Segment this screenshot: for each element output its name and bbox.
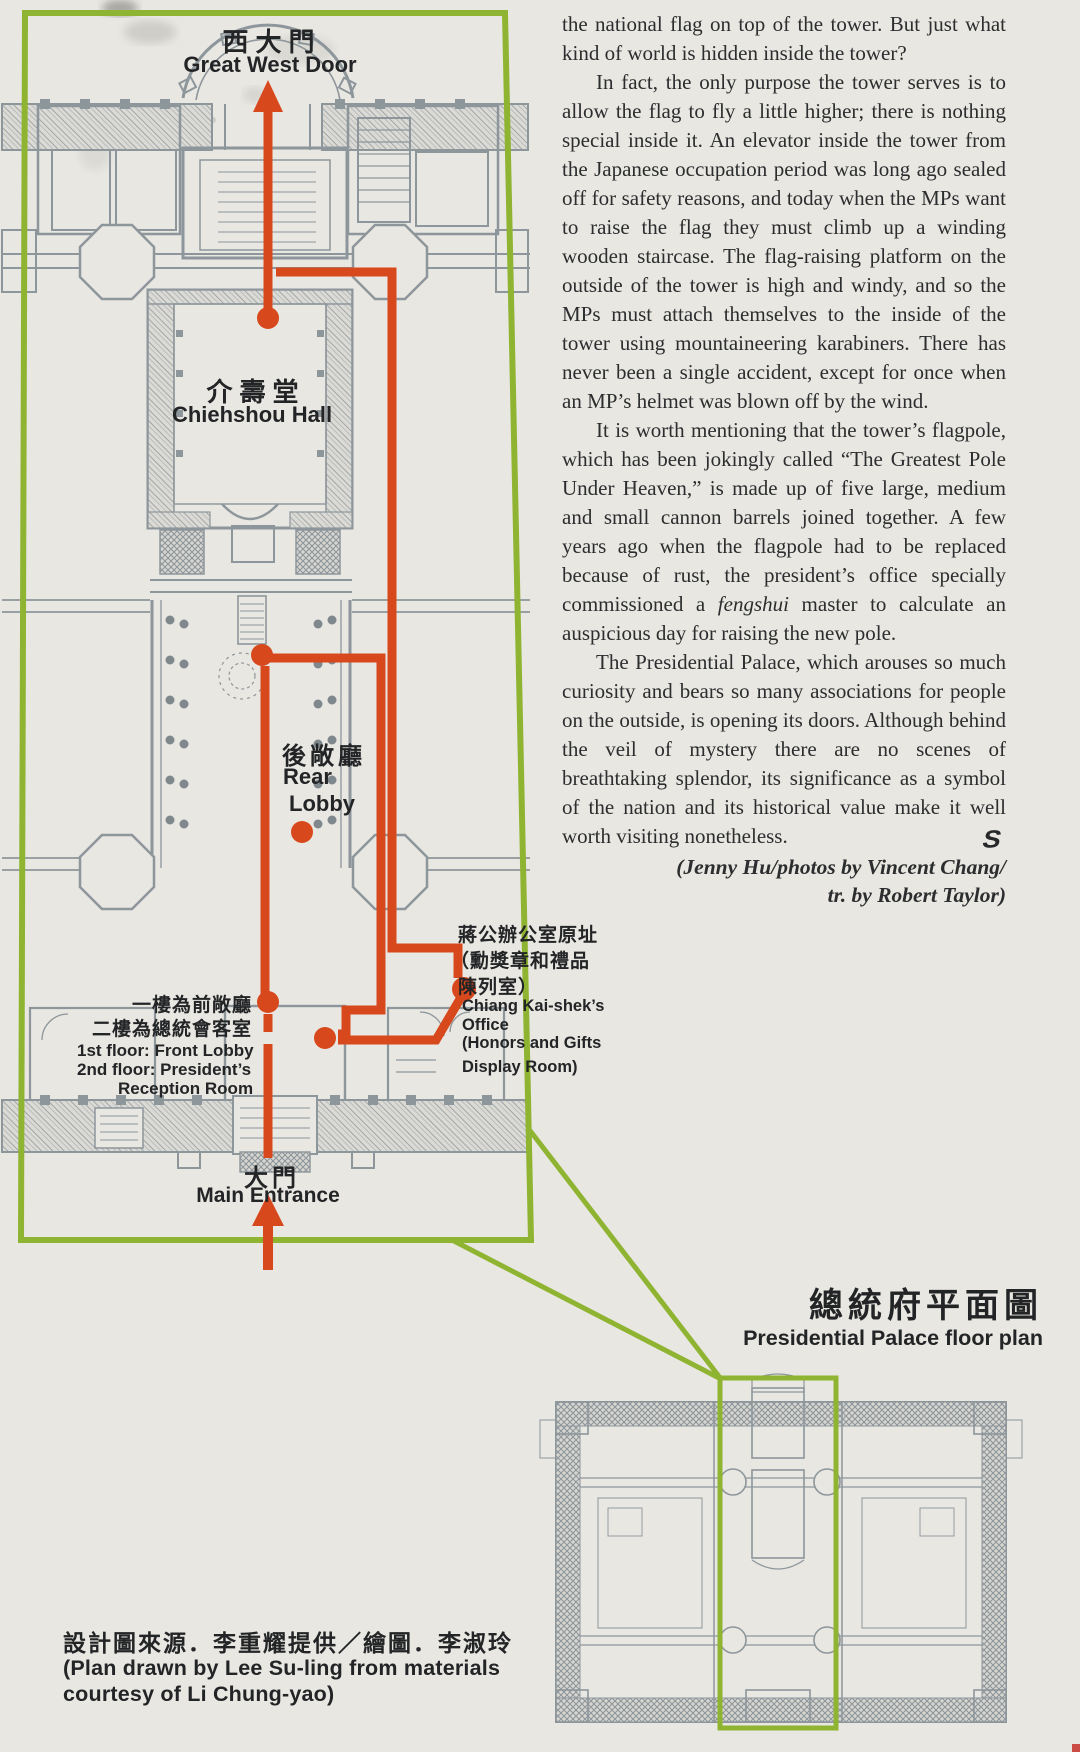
label-great-west-door-en: Great West Door — [183, 52, 356, 78]
plan-credit-en2: courtesy of Li Chung-yao) — [63, 1682, 334, 1707]
label-cks-office-en1: Chiang Kai-shek’s — [462, 997, 604, 1016]
route-dot-hall-entry — [257, 307, 279, 329]
label-cks-office-zh2: （勳獎章和禮品 — [450, 946, 590, 973]
callout-line-upper — [528, 1128, 721, 1379]
route-dot-rear-lobby — [291, 821, 313, 843]
label-cks-office-zh3: 陳列室） — [458, 972, 538, 999]
paragraph-text: The Presidential Palace, which arouses s… — [562, 650, 1006, 848]
label-cks-office-en2: Office — [462, 1016, 509, 1035]
magazine-page-scan: { "colors": { "page_background": "#e9e7e… — [0, 0, 1080, 1752]
label-cks-office-en4: Display Room) — [462, 1058, 578, 1077]
article-paragraph: It is worth mentioning that the tower’s … — [562, 416, 1006, 648]
callout-line-lower — [452, 1240, 721, 1379]
label-front-lobby-en2: 2nd floor: President’s — [77, 1060, 251, 1080]
article-paragraph: In fact, the only purpose the tower serv… — [562, 68, 1006, 416]
label-main-entrance-en: Main Entrance — [196, 1184, 340, 1208]
overview-title-zh: 總統府平面圖 — [809, 1278, 1043, 1327]
plan-credit-zh: 設計圖來源．李重耀提供／繪圖．李淑玲 — [63, 1624, 513, 1658]
label-cks-office-zh1: 蔣公辦公室原址 — [458, 920, 598, 947]
label-front-lobby-en3: Reception Room — [118, 1079, 253, 1099]
label-front-lobby-zh1: 一樓為前敞廳 — [132, 990, 252, 1017]
paragraph-text: It is worth mentioning that the tower’s … — [562, 418, 1006, 616]
label-rear-lobby-en1: Rear — [283, 764, 332, 790]
route-dot-front-lobby — [257, 991, 279, 1013]
article-paragraph: The Presidential Palace, which arouses s… — [562, 648, 1006, 851]
byline-line1: (Jenny Hu/photos by Vincent Chang/ — [562, 853, 1006, 881]
italic-term: fengshui — [718, 592, 789, 616]
highlight-rect — [720, 1378, 836, 1728]
label-cks-office-en3: (Honors and Gifts — [462, 1034, 601, 1053]
plan-credit-en1: (Plan drawn by Lee Su-ling from material… — [63, 1656, 500, 1681]
label-front-lobby-zh2: 二樓為總統會客室 — [92, 1014, 252, 1041]
route-diagonal-to-lobby — [338, 999, 460, 1040]
label-front-lobby-en1: 1st floor: Front Lobby — [77, 1041, 254, 1061]
route-dot-junction — [314, 1027, 336, 1049]
byline-line2: tr. by Robert Taylor) — [562, 881, 1006, 909]
label-rear-lobby-en2: Lobby — [289, 791, 355, 817]
label-chiehshou-hall-en: Chiehshou Hall — [172, 402, 332, 428]
article-column: the national flag on top of the tower. B… — [562, 10, 1006, 909]
overview-floor-plan — [540, 1374, 1022, 1722]
paragraph-text: In fact, the only purpose the tower serv… — [562, 70, 1006, 413]
paragraph-text: the national flag on top of the tower. B… — [562, 12, 1006, 65]
article-paragraph: the national flag on top of the tower. B… — [562, 10, 1006, 68]
byline-credit: (Jenny Hu/photos by Vincent Chang/ tr. b… — [562, 853, 1006, 909]
overview-title-en: Presidential Palace floor plan — [743, 1326, 1043, 1351]
